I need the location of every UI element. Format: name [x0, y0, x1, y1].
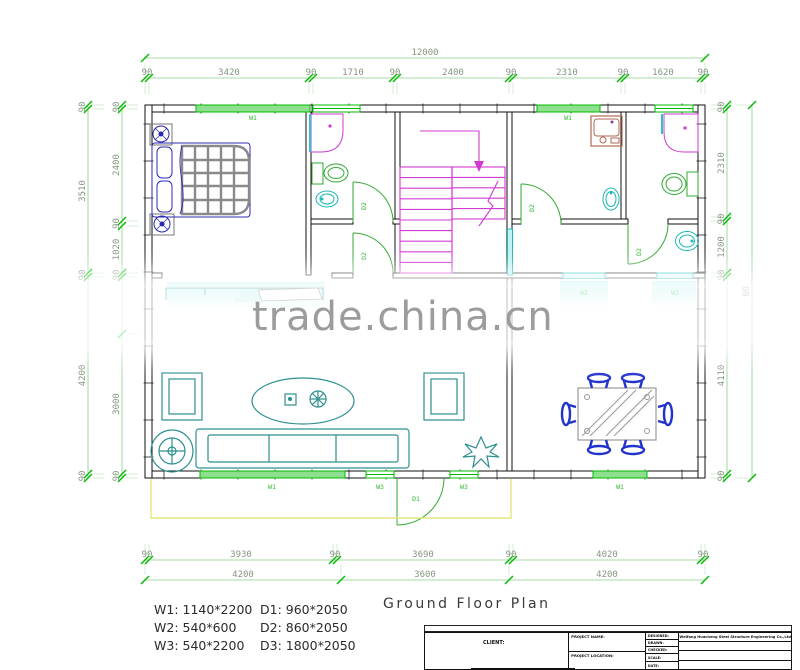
dim-label: 3510 — [78, 180, 88, 202]
client-label: CLIENT: — [483, 640, 504, 646]
pillow — [157, 181, 172, 212]
drawn-label: DRAWN: — [646, 640, 678, 647]
dim-label: 3930 — [230, 550, 252, 560]
armchair-left — [162, 373, 202, 420]
dim-label: 3600 — [414, 570, 436, 580]
drawing-sheet: 1200090342090171090240090231090162090903… — [0, 0, 800, 670]
coffee-table — [252, 378, 354, 424]
dim-label: 1020 — [112, 239, 122, 261]
sink1 — [316, 191, 338, 207]
dim-label: 90 — [78, 102, 88, 113]
role-cells: DESIGNED: DRAWN: CHECKED: SCALE: DATE: — [646, 633, 679, 669]
dim-label: 90 — [698, 68, 709, 78]
legend-d1: D1: 960*2050 — [260, 602, 356, 617]
plan-tag: W1 — [268, 483, 276, 491]
title-block: CLIENT: PROJECT NAME: PROJECT LOCATION: … — [424, 625, 792, 669]
dim-label: 90 — [618, 68, 629, 78]
pillow — [157, 147, 172, 178]
dim-label: 90 — [142, 68, 153, 78]
scale-label: SCALE: — [646, 654, 678, 662]
dim-label: 90 — [506, 68, 517, 78]
dim-label: 4200 — [78, 365, 88, 387]
stair-steps — [400, 167, 505, 273]
plan-tag: D2 — [635, 248, 643, 256]
dim-label: 90 — [142, 550, 153, 560]
legend-d2: D2: 860*2050 — [260, 620, 356, 635]
window-w1-bedroom — [196, 105, 310, 112]
date-label: DATE: — [646, 662, 678, 669]
blanket-grid — [182, 146, 249, 214]
plant — [463, 437, 499, 467]
signature-line — [471, 668, 575, 669]
client-cell: CLIENT: — [425, 633, 569, 669]
plan-tag: D2 — [528, 204, 536, 212]
window-w1-laundry — [537, 105, 600, 112]
dim-label: 2400 — [112, 154, 122, 176]
dim-label: 4200 — [232, 570, 254, 580]
designed-label: DESIGNED: — [646, 633, 678, 640]
sink2 — [676, 232, 699, 251]
dim-label: 3000 — [112, 393, 122, 415]
title-block-main: CLIENT: PROJECT NAME: PROJECT LOCATION: … — [424, 632, 792, 670]
dim-label: 4110 — [717, 365, 727, 387]
door-d2-corridor — [353, 233, 393, 273]
dim-label: 2400 — [442, 68, 464, 78]
legend-d3: D3: 1800*2050 — [260, 638, 356, 653]
size-legend: W1: 1140*2200 D1: 960*2050 W2: 540*600 D… — [154, 602, 356, 653]
window-w1-dining — [593, 471, 647, 478]
legend-w3: W3: 540*2200 — [154, 638, 260, 653]
windows-middle — [508, 229, 694, 279]
staircase — [400, 131, 505, 273]
plan-tag: W3 — [460, 483, 468, 491]
dim-label: 3690 — [412, 550, 434, 560]
dim-label: 90 — [78, 471, 88, 482]
wall-bath1-bottom — [311, 219, 353, 224]
dim-label: 12000 — [411, 48, 438, 58]
dim-label: 90 — [506, 550, 517, 560]
stair-direction-arrow — [420, 131, 479, 163]
washing-machine — [591, 116, 622, 146]
door-d2-hall — [521, 184, 561, 224]
plan-tag: D2 — [360, 252, 368, 260]
toilet2 — [687, 172, 698, 196]
dim-label: 1620 — [652, 68, 674, 78]
window-w1-living — [200, 471, 345, 478]
watermark-text: trade.china.cn — [252, 294, 672, 340]
shower2 — [664, 114, 698, 152]
legend-w1: W1: 1140*2200 — [154, 602, 260, 617]
dim-label: 4200 — [596, 570, 618, 580]
window-w2-a — [563, 273, 605, 279]
dim-label: 1710 — [342, 68, 364, 78]
plan-tag: W1 — [249, 114, 257, 122]
door-d2-dining — [628, 224, 668, 264]
dim-label: 90 — [78, 270, 88, 281]
toilet1 — [312, 163, 323, 184]
project-location-label: PROJECT LOCATION: — [569, 652, 645, 670]
living-room-furniture — [151, 373, 499, 472]
dim-label: 2310 — [556, 68, 578, 78]
stair-flight-right — [452, 167, 505, 219]
dim-label: 4020 — [596, 550, 618, 560]
dim-label: 90 — [698, 550, 709, 560]
plan-tag: W1 — [564, 114, 572, 122]
dim-label: 90 — [717, 214, 727, 225]
bedroom-furniture — [150, 124, 250, 235]
project-cells: PROJECT NAME: PROJECT LOCATION: — [569, 633, 646, 669]
plan-title: Ground Floor Plan — [383, 596, 551, 612]
company-cells: Weifang Huacheng Steel Structure Enginee… — [679, 633, 791, 669]
dim-label: 90 — [112, 471, 122, 482]
dim-label: 90 — [112, 218, 122, 229]
company-name: Weifang Huacheng Steel Structure Enginee… — [679, 633, 791, 642]
wall-bath-stair — [395, 112, 400, 275]
plan-tag: W1 — [616, 483, 624, 491]
dining-furniture — [562, 374, 672, 454]
dim-label: 90 — [717, 270, 727, 281]
legend-w2: W2: 540*600 — [154, 620, 260, 635]
dim-label: 90 — [306, 68, 317, 78]
dim-label: 3420 — [218, 68, 240, 78]
porch-outline — [151, 479, 511, 518]
plan-tag: D1 — [412, 495, 420, 503]
dim-label: 1200 — [717, 236, 727, 258]
dim-label: 90 — [390, 68, 401, 78]
dim-label: 90 — [330, 550, 341, 560]
window-hall — [508, 229, 513, 275]
plan-tag: W3 — [376, 483, 384, 491]
project-name-label: PROJECT NAME: — [569, 633, 645, 652]
checked-label: CHECKED: — [646, 647, 678, 654]
dim-label: 90 — [717, 102, 727, 113]
bathroom1 — [310, 114, 348, 207]
dim-label: 90 — [112, 270, 122, 281]
laundry-room — [591, 116, 622, 210]
plan-tag: D2 — [360, 202, 368, 210]
armchair-right — [424, 373, 464, 420]
shower1 — [311, 114, 343, 152]
window-w2-b — [657, 273, 693, 279]
door-d2-bath1 — [353, 182, 393, 222]
dim-label: 90 — [112, 102, 122, 113]
dim-label: 90 — [717, 471, 727, 482]
title-block-top-strip — [424, 625, 792, 632]
dim-label: 2310 — [717, 152, 727, 174]
